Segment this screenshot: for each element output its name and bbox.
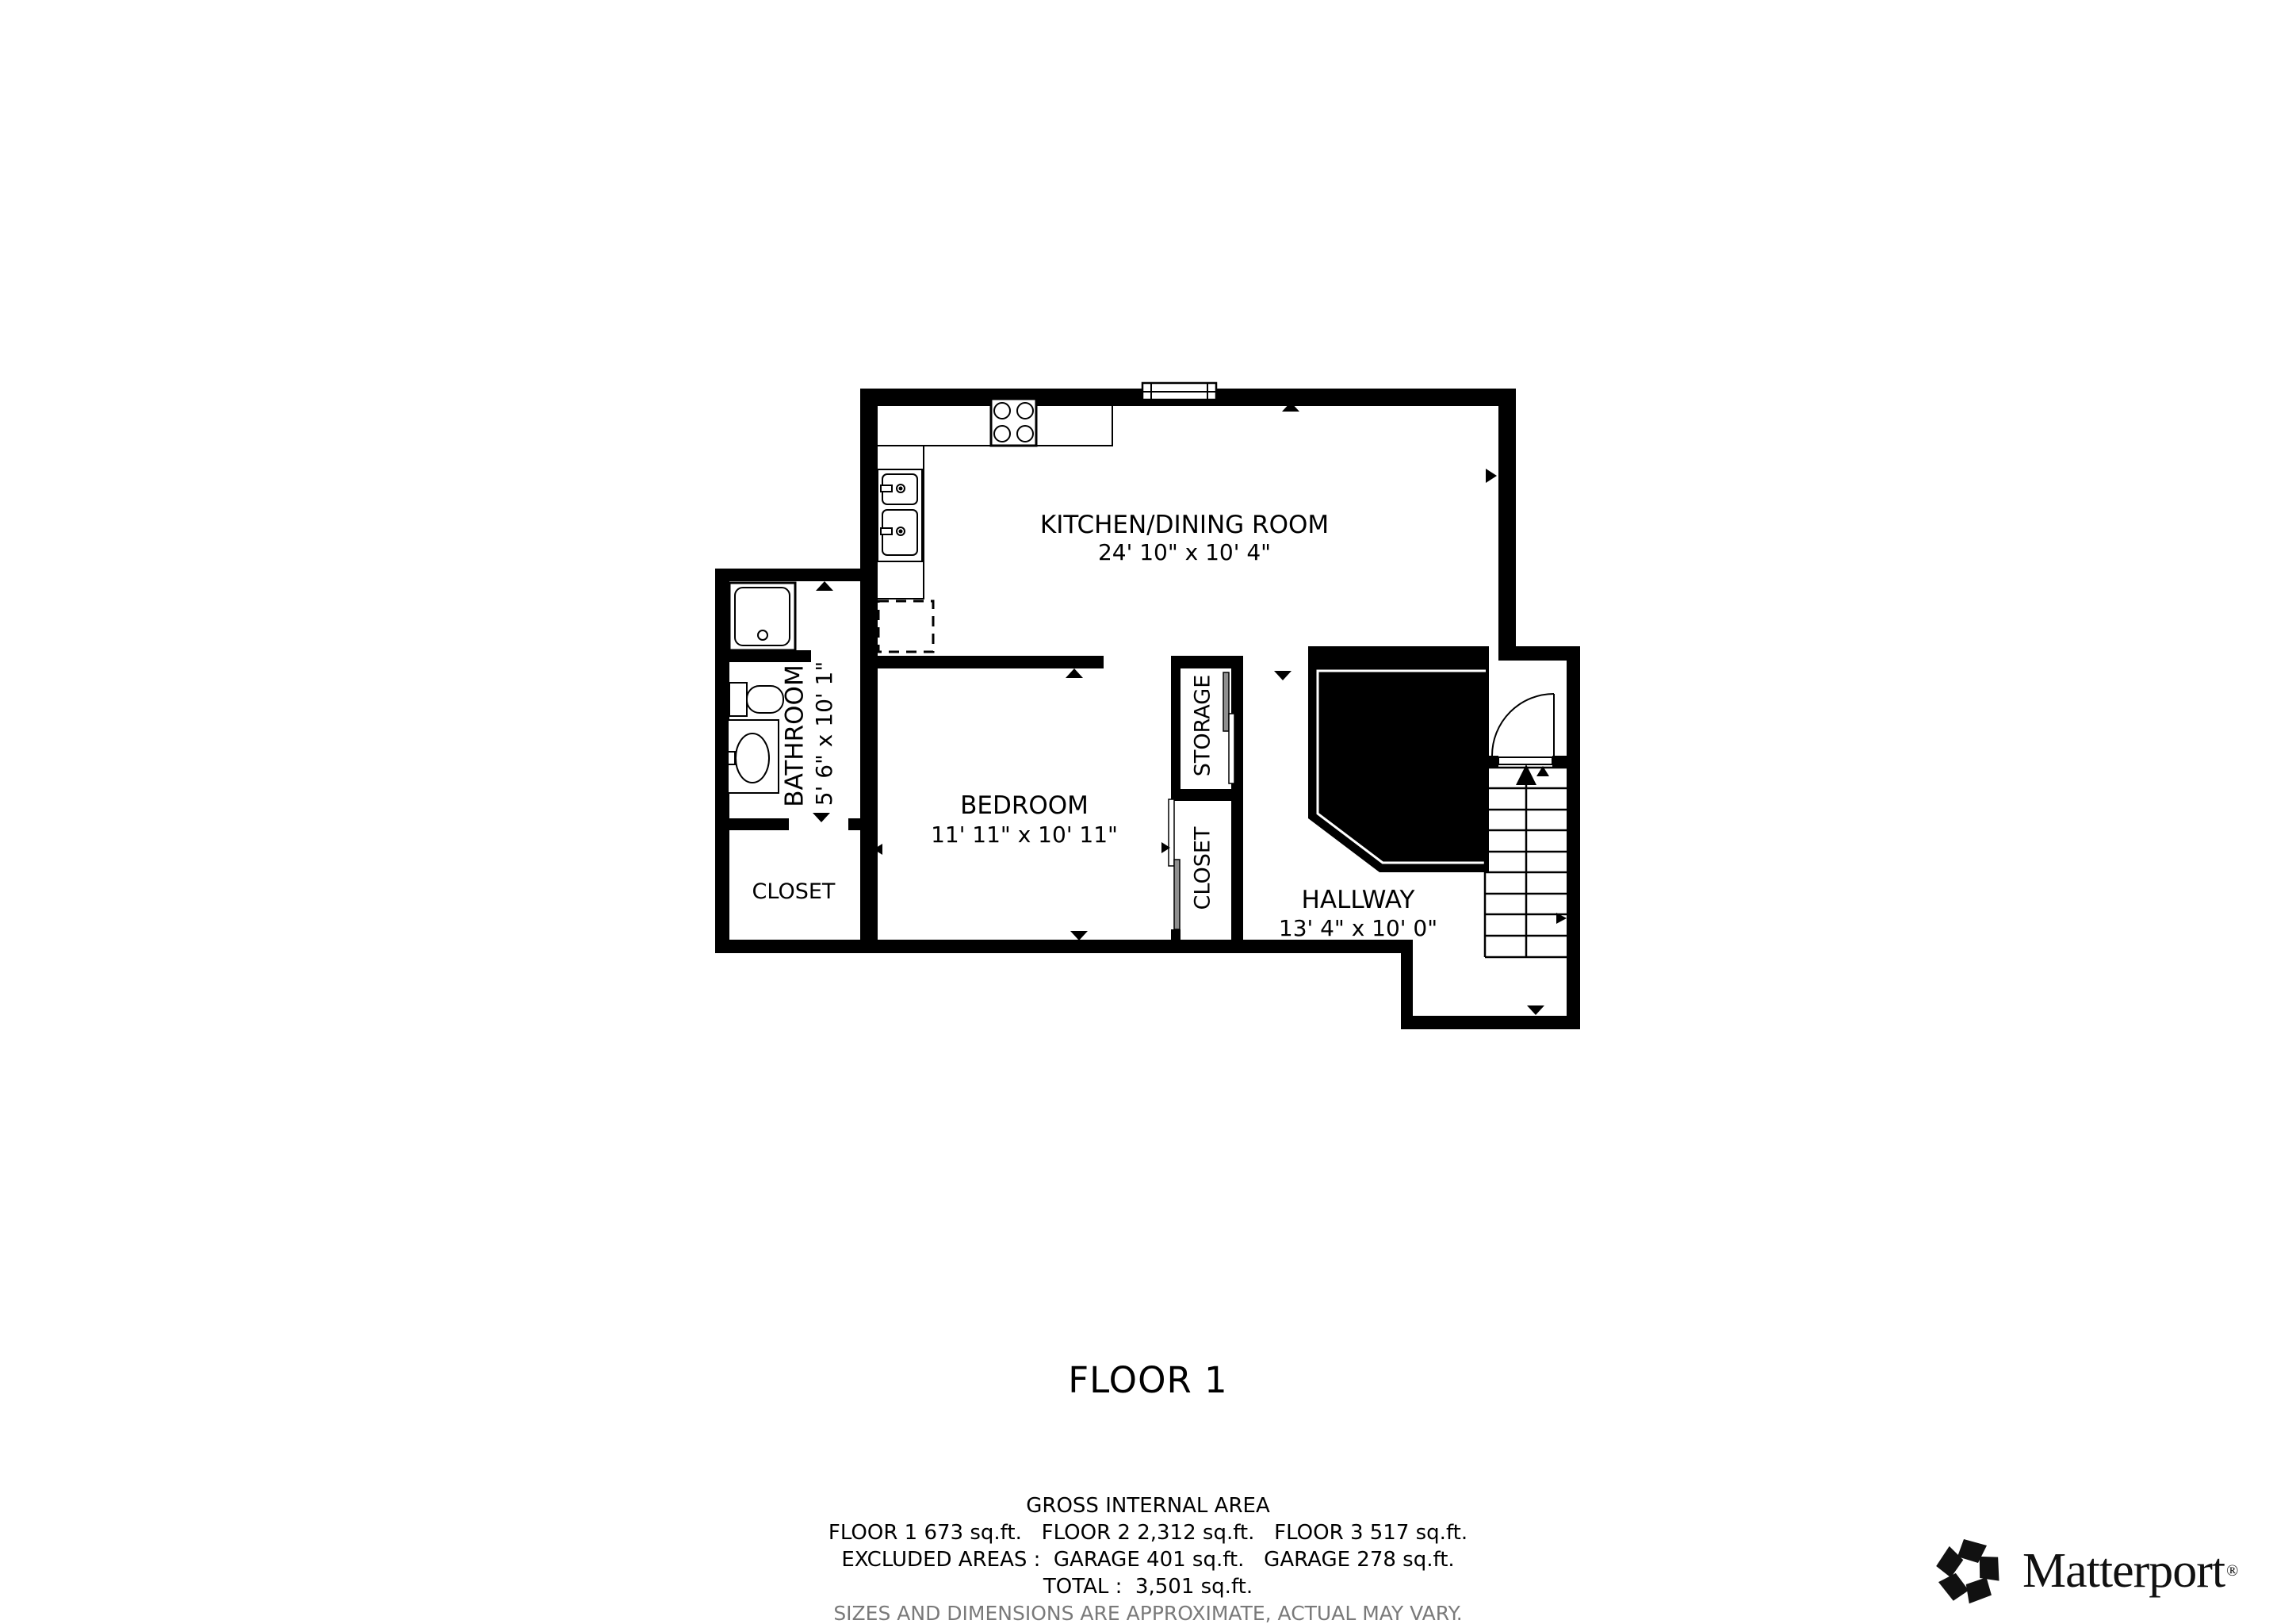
room-label-bedroom: BEDROOM (960, 791, 1089, 820)
registered-trademark-icon: ® (2226, 1562, 2238, 1580)
wall-hallway-bottom (1401, 1016, 1580, 1029)
wall-kitchen-bedroom (860, 656, 1104, 668)
matterport-logo: Matterport® (1932, 1535, 2238, 1607)
wall-storage-closet-divider (1171, 789, 1243, 801)
floor-title: FLOOR 1 (0, 1359, 2296, 1401)
room-label-hallway: HALLWAY (1302, 886, 1415, 914)
arrow-right-kitchen-wall-icon (1486, 469, 1497, 483)
wall-bathroom-top (715, 569, 860, 581)
void-region (1308, 646, 1489, 872)
wall-vestibule-top (1498, 646, 1580, 661)
area-summary-heading: GROSS INTERNAL AREA (0, 1492, 2296, 1519)
wall-storage-right (1231, 656, 1243, 953)
washbasin-icon (728, 720, 779, 793)
room-dims-hallway: 13' 4" x 10' 0" (1279, 915, 1437, 941)
double-sink-icon (878, 469, 922, 561)
wall-kitchen-left (860, 389, 878, 953)
door-threshold (1498, 757, 1552, 764)
floor-plan-page: KITCHEN/DINING ROOM 24' 10" x 10' 4" BED… (0, 0, 2296, 1624)
wall-closet-left-stub (1171, 929, 1181, 953)
stove-icon (991, 399, 1036, 446)
wall-bathroom-bottom-right (848, 818, 860, 830)
room-label-kitchen: KITCHEN/DINING ROOM (1040, 511, 1329, 539)
wall-door-stub-right (1552, 756, 1580, 768)
door-swing-arc (1492, 694, 1554, 756)
shower-icon (729, 583, 795, 650)
wall-right-outer (1567, 646, 1580, 1029)
wall-kitchen-right (1498, 389, 1516, 650)
room-label-closet-bedroom: CLOSET (1191, 826, 1215, 910)
storage-slider-panel-b (1229, 714, 1234, 783)
arrow-up-bathroom-icon (816, 581, 833, 591)
room-label-storage: STORAGE (1191, 675, 1215, 777)
stairs (1485, 766, 1567, 957)
arrow-down-hallway-bottom-icon (1527, 1005, 1544, 1015)
matterport-wordmark: Matterport (2022, 1543, 2225, 1599)
room-dims-bedroom: 11' 11" x 10' 11" (931, 822, 1118, 848)
room-dims-bathroom: 5' 6" x 10' 1" (811, 661, 837, 806)
matterport-pinwheel-icon (1932, 1535, 2005, 1607)
room-dims-kitchen: 24' 10" x 10' 4" (1098, 539, 1271, 565)
room-label-closet-bathroom: CLOSET (752, 879, 836, 904)
room-label-bathroom: BATHROOM (781, 665, 809, 806)
toilet-icon (729, 683, 783, 716)
wall-bottom-main (715, 940, 1413, 953)
arrow-up-bedroom-door-icon (1066, 668, 1083, 678)
wall-bathroom-bottom-left (728, 818, 789, 830)
closet-slider-panel-a (1169, 799, 1174, 866)
window (1142, 383, 1216, 400)
entry-door (1492, 694, 1554, 764)
wall-storage-left (1171, 656, 1181, 801)
storage-slider-panel-a (1223, 672, 1229, 731)
closet-slider-panel-b (1174, 860, 1180, 929)
arrow-down-bath-closet-icon (813, 813, 830, 822)
appliance-dashed-icon (878, 601, 933, 652)
arrow-down-bedroom-bottom-icon (1070, 931, 1088, 940)
arrow-down-passage-icon (1274, 671, 1291, 680)
wall-shower-stub (715, 650, 811, 662)
